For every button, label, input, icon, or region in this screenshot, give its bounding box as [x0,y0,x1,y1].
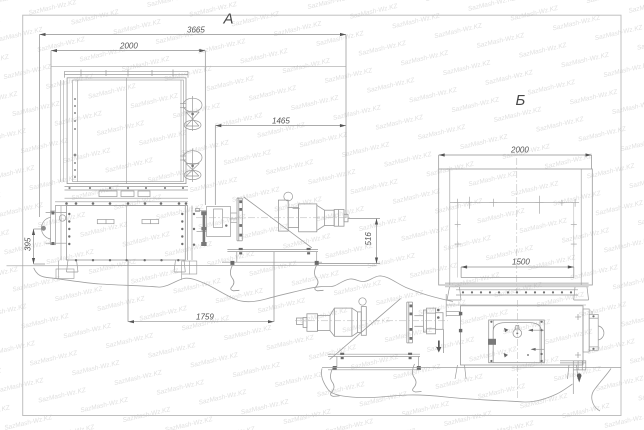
svg-text:SazMash-Wz.KZ: SazMash-Wz.KZ [54,110,104,128]
svg-text:SazMash-Wz.KZ: SazMash-Wz.KZ [442,59,492,77]
svg-text:SazMash-Wz.KZ: SazMash-Wz.KZ [417,123,467,141]
svg-text:SazMash-Wz.KZ: SazMash-Wz.KZ [283,408,333,426]
svg-text:SazMash-Wz.KZ: SazMash-Wz.KZ [198,389,248,407]
svg-text:SazMash-Wz.KZ: SazMash-Wz.KZ [637,209,644,227]
svg-text:SazMash-Wz.KZ: SazMash-Wz.KZ [459,133,509,151]
svg-text:SazMash-Wz.KZ: SazMash-Wz.KZ [604,412,644,430]
svg-text:SazMash-Wz.KZ: SazMash-Wz.KZ [223,324,273,342]
svg-text:SazMash-Wz.KZ: SazMash-Wz.KZ [113,369,163,387]
svg-text:SazMash-Wz.KZ: SazMash-Wz.KZ [603,236,644,254]
svg-text:SazMash-Wz.KZ: SazMash-Wz.KZ [248,260,298,278]
svg-text:SazMash-Wz.KZ: SazMash-Wz.KZ [527,79,577,97]
svg-text:SazMash-Wz.KZ: SazMash-Wz.KZ [37,387,87,405]
svg-text:SazMash-Wz.KZ: SazMash-Wz.KZ [375,114,425,132]
svg-text:SazMash-Wz.KZ: SazMash-Wz.KZ [510,5,560,23]
svg-text:SazMash-Wz.KZ: SazMash-Wz.KZ [29,350,79,368]
svg-text:SazMash-Wz.KZ: SazMash-Wz.KZ [0,229,11,247]
svg-text:SazMash-Wz.KZ: SazMash-Wz.KZ [121,55,171,73]
svg-text:SazMash-Wz.KZ: SazMash-Wz.KZ [104,157,154,175]
svg-text:SazMash-Wz.KZ: SazMash-Wz.KZ [400,49,450,67]
svg-text:SazMash-Wz.KZ: SazMash-Wz.KZ [0,192,3,210]
svg-text:SazMash-Wz.KZ: SazMash-Wz.KZ [96,120,146,138]
svg-text:SazMash-Wz.KZ: SazMash-Wz.KZ [307,0,357,11]
svg-text:SazMash-Wz.KZ: SazMash-Wz.KZ [484,69,534,87]
svg-text:SazMash-Wz.KZ: SazMash-Wz.KZ [274,371,324,389]
svg-text:SazMash-Wz.KZ: SazMash-Wz.KZ [612,273,644,291]
svg-text:SazMash-Wz.KZ: SazMash-Wz.KZ [519,392,569,410]
svg-text:SazMash-Wz.KZ: SazMash-Wz.KZ [45,73,95,91]
svg-text:SazMash-Wz.KZ: SazMash-Wz.KZ [595,375,644,393]
svg-text:SazMash-Wz.KZ: SazMash-Wz.KZ [105,332,155,350]
svg-text:SazMash-Wz.KZ: SazMash-Wz.KZ [561,227,611,245]
svg-text:SazMash-Wz.KZ: SazMash-Wz.KZ [409,262,459,280]
svg-text:SazMash-Wz.KZ: SazMash-Wz.KZ [0,90,19,108]
svg-text:SazMash-Wz.KZ: SazMash-Wz.KZ [544,328,594,346]
svg-text:SazMash-Wz.KZ: SazMash-Wz.KZ [477,383,527,401]
svg-text:SazMash-Wz.KZ: SazMash-Wz.KZ [443,410,493,428]
svg-text:SazMash-Wz.KZ: SazMash-Wz.KZ [426,336,476,354]
svg-text:SazMash-Wz.KZ: SazMash-Wz.KZ [485,420,535,430]
svg-text:SazMash-Wz.KZ: SazMash-Wz.KZ [163,65,213,83]
svg-text:SazMash-Wz.KZ: SazMash-Wz.KZ [299,131,349,149]
svg-text:SazMash-Wz.KZ: SazMash-Wz.KZ [628,172,644,190]
svg-text:SazMash-Wz.KZ: SazMash-Wz.KZ [426,160,476,178]
svg-text:SazMash-Wz.KZ: SazMash-Wz.KZ [552,190,602,208]
svg-text:SazMash-Wz.KZ: SazMash-Wz.KZ [37,36,87,54]
svg-text:SazMash-Wz.KZ: SazMash-Wz.KZ [316,381,366,399]
svg-text:SazMash-Wz.KZ: SazMash-Wz.KZ [535,116,585,134]
svg-text:SazMash-Wz.KZ: SazMash-Wz.KZ [578,125,628,143]
svg-text:SazMash-Wz.KZ: SazMash-Wz.KZ [0,367,3,385]
svg-text:SazMash-Wz.KZ: SazMash-Wz.KZ [629,348,644,366]
svg-text:SazMash-Wz.KZ: SazMash-Wz.KZ [308,344,358,362]
svg-text:SazMash-Wz.KZ: SazMash-Wz.KZ [0,0,36,7]
svg-text:395: 395 [24,237,33,251]
svg-text:SazMash-Wz.KZ: SazMash-Wz.KZ [0,164,36,182]
svg-text:SazMash-Wz.KZ: SazMash-Wz.KZ [594,24,644,42]
svg-text:SazMash-Wz.KZ: SazMash-Wz.KZ [383,151,433,169]
svg-text:SazMash-Wz.KZ: SazMash-Wz.KZ [620,135,644,153]
svg-text:SazMash-Wz.KZ: SazMash-Wz.KZ [493,281,543,299]
svg-text:SazMash-Wz.KZ: SazMash-Wz.KZ [232,361,282,379]
svg-text:SazMash-Wz.KZ: SazMash-Wz.KZ [156,379,206,397]
svg-text:SazMash-Wz.KZ: SazMash-Wz.KZ [231,10,281,28]
svg-text:SazMash-Wz.KZ: SazMash-Wz.KZ [367,252,417,270]
svg-text:SazMash-Wz.KZ: SazMash-Wz.KZ [560,51,610,69]
svg-text:SazMash-Wz.KZ: SazMash-Wz.KZ [215,287,265,305]
svg-text:SazMash-Wz.KZ: SazMash-Wz.KZ [130,92,180,110]
svg-text:SazMash-Wz.KZ: SazMash-Wz.KZ [248,84,298,102]
svg-text:SazMash-Wz.KZ: SazMash-Wz.KZ [408,86,458,104]
svg-text:SazMash-Wz.KZ: SazMash-Wz.KZ [324,67,374,85]
svg-text:SazMash-Wz.KZ: SazMash-Wz.KZ [0,266,20,284]
svg-text:SazMash-Wz.KZ: SazMash-Wz.KZ [434,198,484,216]
svg-text:SazMash-Wz.KZ: SazMash-Wz.KZ [0,127,28,145]
svg-text:SazMash-Wz.KZ: SazMash-Wz.KZ [147,342,197,360]
svg-text:SazMash-Wz.KZ: SazMash-Wz.KZ [63,322,113,340]
svg-text:SazMash-Wz.KZ: SazMash-Wz.KZ [96,295,146,313]
svg-text:SazMash-Wz.KZ: SazMash-Wz.KZ [400,225,450,243]
svg-text:SazMash-Wz.KZ: SazMash-Wz.KZ [527,254,577,272]
svg-text:SazMash-Wz.KZ: SazMash-Wz.KZ [349,3,399,21]
svg-text:А: А [223,11,234,28]
svg-text:SazMash-Wz.KZ: SazMash-Wz.KZ [122,231,172,249]
svg-text:SazMash-Wz.KZ: SazMash-Wz.KZ [392,188,442,206]
svg-text:SazMash-Wz.KZ: SazMash-Wz.KZ [88,258,138,276]
svg-text:SazMash-Wz.KZ: SazMash-Wz.KZ [70,9,120,27]
svg-text:SazMash-Wz.KZ: SazMash-Wz.KZ [11,100,61,118]
svg-text:SazMash-Wz.KZ: SazMash-Wz.KZ [586,0,636,5]
svg-text:SazMash-Wz.KZ: SazMash-Wz.KZ [451,96,501,114]
svg-text:SazMash-Wz.KZ: SazMash-Wz.KZ [240,398,290,416]
svg-text:SazMash-Wz.KZ: SazMash-Wz.KZ [636,34,644,52]
svg-text:SazMash-Wz.KZ: SazMash-Wz.KZ [291,270,341,288]
svg-text:SazMash-Wz.KZ: SazMash-Wz.KZ [358,40,408,58]
svg-text:SazMash-Wz.KZ: SazMash-Wz.KZ [628,0,644,15]
svg-text:SazMash-Wz.KZ: SazMash-Wz.KZ [476,32,526,50]
svg-text:516: 516 [364,232,373,246]
svg-text:SazMash-Wz.KZ: SazMash-Wz.KZ [519,217,569,235]
svg-text:SazMash-Wz.KZ: SazMash-Wz.KZ [0,303,28,321]
svg-text:Б: Б [516,92,526,109]
svg-text:SazMash-Wz.KZ: SazMash-Wz.KZ [46,424,96,430]
svg-text:SazMash-Wz.KZ: SazMash-Wz.KZ [359,390,409,408]
svg-text:SazMash-Wz.KZ: SazMash-Wz.KZ [265,334,315,352]
svg-text:SazMash-Wz.KZ: SazMash-Wz.KZ [350,353,400,371]
svg-text:SazMash-Wz.KZ: SazMash-Wz.KZ [603,61,644,79]
svg-text:SazMash-Wz.KZ: SazMash-Wz.KZ [460,309,510,327]
svg-text:SazMash-Wz.KZ: SazMash-Wz.KZ [273,20,323,38]
svg-text:SazMash-Wz.KZ: SazMash-Wz.KZ [80,396,130,414]
svg-text:SazMash-Wz.KZ: SazMash-Wz.KZ [468,170,518,188]
svg-text:SazMash-Wz.KZ: SazMash-Wz.KZ [569,264,619,282]
svg-text:3665: 3665 [187,26,205,35]
svg-text:SazMash-Wz.KZ: SazMash-Wz.KZ [637,385,644,403]
svg-text:SazMash-Wz.KZ: SazMash-Wz.KZ [0,16,2,34]
svg-text:SazMash-Wz.KZ: SazMash-Wz.KZ [611,98,644,116]
svg-text:SazMash-Wz.KZ: SazMash-Wz.KZ [206,75,256,93]
svg-text:SazMash-Wz.KZ: SazMash-Wz.KZ [20,137,70,155]
svg-text:SazMash-Wz.KZ: SazMash-Wz.KZ [223,149,273,167]
svg-text:SazMash-Wz.KZ: SazMash-Wz.KZ [511,355,561,373]
svg-text:2000: 2000 [510,146,529,155]
svg-text:SazMash-Wz.KZ: SazMash-Wz.KZ [569,88,619,106]
svg-text:SazMash-Wz.KZ: SazMash-Wz.KZ [0,404,12,422]
svg-text:SazMash-Wz.KZ: SazMash-Wz.KZ [164,416,214,430]
svg-text:SazMash-Wz.KZ: SazMash-Wz.KZ [3,63,53,81]
svg-text:SazMash-Wz.KZ: SazMash-Wz.KZ [139,305,189,323]
svg-text:SazMash-Wz.KZ: SazMash-Wz.KZ [290,94,340,112]
svg-text:SazMash-Wz.KZ: SazMash-Wz.KZ [62,147,112,165]
svg-text:SazMash-Wz.KZ: SazMash-Wz.KZ [586,162,636,180]
svg-text:SazMash-Wz.KZ: SazMash-Wz.KZ [518,42,568,60]
svg-text:SazMash-Wz.KZ: SazMash-Wz.KZ [54,285,104,303]
svg-text:1500: 1500 [512,258,530,267]
svg-text:SazMash-Wz.KZ: SazMash-Wz.KZ [358,215,408,233]
svg-text:1465: 1465 [272,117,290,126]
svg-text:SazMash-Wz.KZ: SazMash-Wz.KZ [214,112,264,130]
svg-text:SazMash-Wz.KZ: SazMash-Wz.KZ [307,168,357,186]
svg-text:SazMash-Wz.KZ: SazMash-Wz.KZ [207,426,257,430]
svg-text:SazMash-Wz.KZ: SazMash-Wz.KZ [155,203,205,221]
svg-text:SazMash-Wz.KZ: SazMash-Wz.KZ [434,22,484,40]
svg-text:SazMash-Wz.KZ: SazMash-Wz.KZ [0,340,37,358]
svg-text:SazMash-Wz.KZ: SazMash-Wz.KZ [325,418,375,430]
svg-text:SazMash-Wz.KZ: SazMash-Wz.KZ [435,373,485,391]
svg-text:SazMash-Wz.KZ: SazMash-Wz.KZ [392,363,442,381]
svg-text:SazMash-Wz.KZ: SazMash-Wz.KZ [265,159,315,177]
svg-text:SazMash-Wz.KZ: SazMash-Wz.KZ [0,53,11,71]
svg-text:SazMash-Wz.KZ: SazMash-Wz.KZ [4,414,54,430]
svg-text:SazMash-Wz.KZ: SazMash-Wz.KZ [20,313,70,331]
svg-text:SazMash-Wz.KZ: SazMash-Wz.KZ [332,104,382,122]
svg-text:SazMash-Wz.KZ: SazMash-Wz.KZ [197,38,247,56]
svg-text:SazMash-Wz.KZ: SazMash-Wz.KZ [46,248,96,266]
svg-text:SazMash-Wz.KZ: SazMash-Wz.KZ [366,77,416,95]
svg-text:SazMash-Wz.KZ: SazMash-Wz.KZ [239,47,289,65]
svg-text:SazMash-Wz.KZ: SazMash-Wz.KZ [28,0,78,17]
svg-text:SazMash-Wz.KZ: SazMash-Wz.KZ [595,199,644,217]
svg-text:SazMash-Wz.KZ: SazMash-Wz.KZ [552,14,602,32]
svg-text:SazMash-Wz.KZ: SazMash-Wz.KZ [28,174,78,192]
svg-text:SazMash-Wz.KZ: SazMash-Wz.KZ [265,0,315,1]
svg-text:SazMash-Wz.KZ: SazMash-Wz.KZ [315,30,365,48]
svg-text:SazMash-Wz.KZ: SazMash-Wz.KZ [87,83,137,101]
svg-text:SazMash-Wz.KZ: SazMash-Wz.KZ [189,176,239,194]
svg-text:SazMash-Wz.KZ: SazMash-Wz.KZ [350,178,400,196]
svg-text:SazMash-Wz.KZ: SazMash-Wz.KZ [113,18,163,36]
svg-text:SazMash-Wz.KZ: SazMash-Wz.KZ [476,207,526,225]
svg-text:SazMash-Wz.KZ: SazMash-Wz.KZ [333,279,383,297]
svg-text:SazMash-Wz.KZ: SazMash-Wz.KZ [510,180,560,198]
svg-text:SazMash-Wz.KZ: SazMash-Wz.KZ [0,26,44,44]
svg-text:SazMash-Wz.KZ: SazMash-Wz.KZ [341,141,391,159]
svg-text:SazMash-Wz.KZ: SazMash-Wz.KZ [443,235,493,253]
svg-text:SazMash-Wz.KZ: SazMash-Wz.KZ [425,0,475,3]
svg-text:1759: 1759 [196,313,214,322]
svg-text:SazMash-Wz.KZ: SazMash-Wz.KZ [316,205,366,223]
svg-text:SazMash-Wz.KZ: SazMash-Wz.KZ [71,359,121,377]
svg-text:SazMash-Wz.KZ: SazMash-Wz.KZ [467,0,517,13]
svg-text:SazMash-Wz.KZ: SazMash-Wz.KZ [146,0,196,9]
svg-text:SazMash-Wz.KZ: SazMash-Wz.KZ [561,402,611,420]
svg-text:SazMash-Wz.KZ: SazMash-Wz.KZ [620,311,644,329]
svg-text:SazMash-Wz.KZ: SazMash-Wz.KZ [189,351,239,369]
svg-text:2000: 2000 [119,42,138,51]
